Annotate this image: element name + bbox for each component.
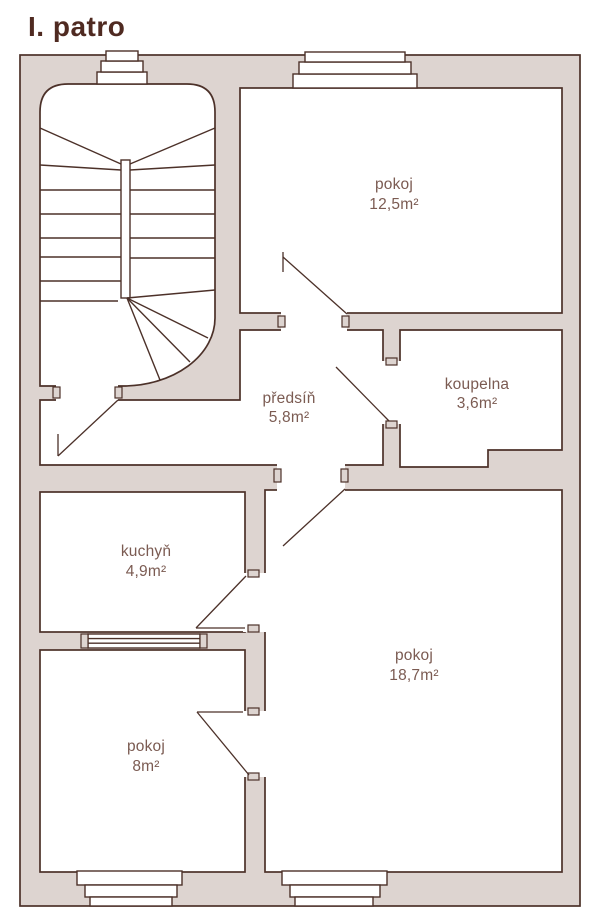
room-area-pokoj-8: 8m² (132, 758, 159, 775)
room-label-koupelna: koupelna (445, 376, 510, 393)
door-pokoj-8-pokoj-18-7 (243, 711, 267, 777)
door-predsin-pokoj-18-7 (277, 463, 345, 492)
door-predsin-pokoj-12-5 (281, 311, 347, 332)
room-area-koupelna: 3,6m² (457, 395, 498, 412)
window-kuchyn-pokoj-8 (81, 634, 207, 648)
page-title: I. patro (28, 11, 125, 42)
room-area-predsin: 5,8m² (269, 409, 310, 426)
room-label-pokoj-12-5: pokoj (375, 176, 413, 193)
window-bottom-pokoj-8 (77, 871, 182, 906)
door-stair-hall (56, 384, 118, 402)
room-area-pokoj-18-7: 18,7m² (389, 667, 438, 684)
room-label-pokoj-8: pokoj (127, 738, 165, 755)
room-label-pokoj-18-7: pokoj (395, 647, 433, 664)
room-kuchyn (40, 492, 245, 632)
room-area-kuchyn: 4,9m² (126, 563, 167, 580)
room-label-predsin: předsíň (262, 390, 315, 407)
window-bottom-pokoj-18-7 (282, 871, 387, 906)
door-predsin-koupelna (381, 361, 402, 424)
floorplan-svg: I. patro pokoj 12,5m² koupelna 3,6m² pře… (0, 0, 600, 921)
room-label-kuchyn: kuchyň (121, 543, 171, 560)
window-top-pokoj-12-5 (293, 52, 417, 88)
room-area-pokoj-12-5: 12,5m² (369, 196, 418, 213)
door-kuchyn-pokoj-18-7 (243, 573, 267, 632)
floor-plan-page: I. patro pokoj 12,5m² koupelna 3,6m² pře… (0, 0, 600, 921)
stair-divider (121, 160, 130, 298)
